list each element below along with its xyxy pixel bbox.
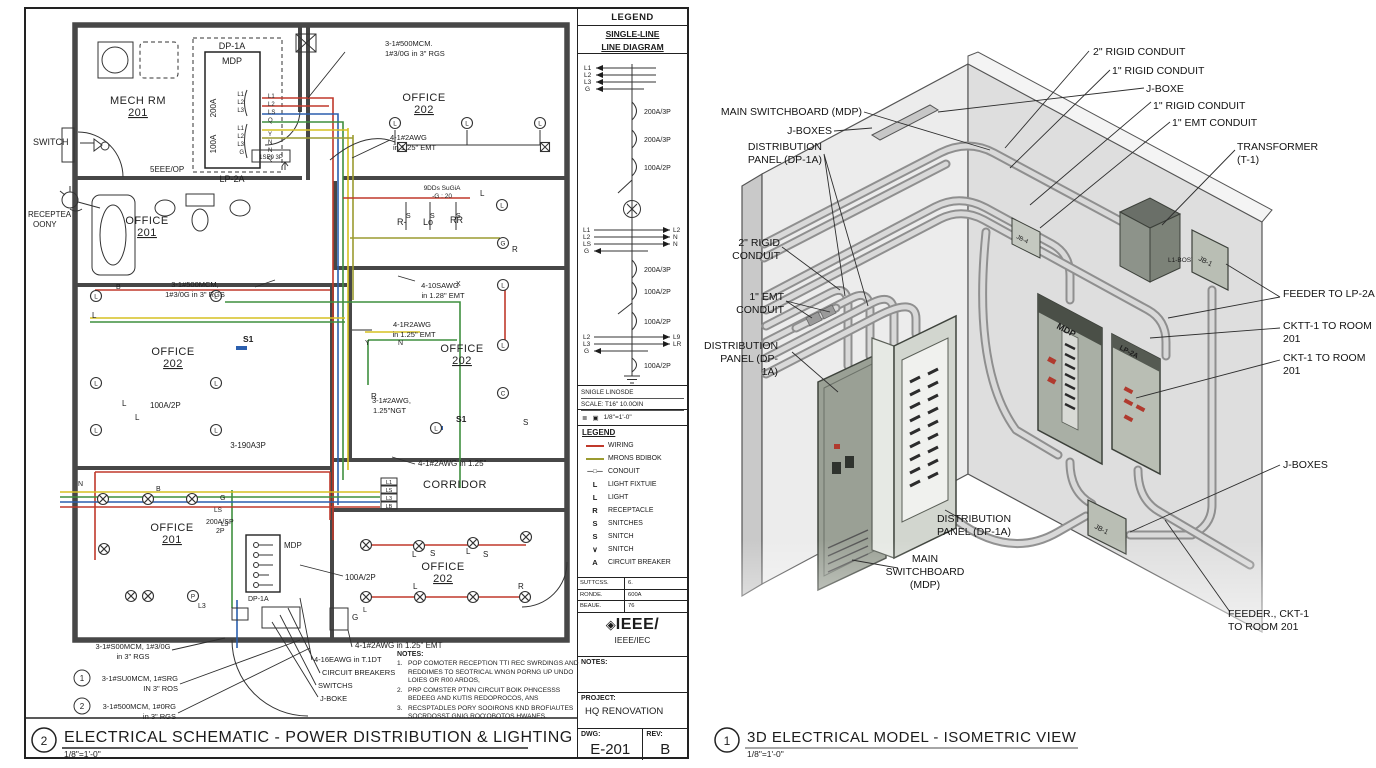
svg-text:100A/2P: 100A/2P bbox=[644, 165, 671, 172]
svg-text:2: 2 bbox=[41, 734, 48, 748]
svg-text:S1: S1 bbox=[456, 414, 467, 424]
svg-text:L1: L1 bbox=[584, 65, 592, 72]
svg-text:1#3/0G in 3" RGS: 1#3/0G in 3" RGS bbox=[385, 49, 445, 58]
svg-text:L1: L1 bbox=[583, 227, 591, 234]
svg-text:RR: RR bbox=[450, 215, 463, 225]
svg-text:J-BOKE: J-BOKE bbox=[320, 694, 347, 703]
svg-text:200A: 200A bbox=[209, 98, 218, 117]
svg-text:2P: 2P bbox=[216, 528, 225, 535]
svg-text:SWITCH: SWITCH bbox=[33, 137, 69, 147]
callout-1: 1 bbox=[80, 674, 85, 683]
single-line-footer: SNIGLE LINOSDE SCALE: T16" 10.0OIN bbox=[578, 386, 687, 410]
sheet-artwork: L1 LS L3 LB bbox=[0, 0, 1376, 768]
svg-text:202: 202 bbox=[163, 358, 183, 370]
svg-text:B: B bbox=[116, 284, 121, 291]
svg-text:G: G bbox=[585, 86, 590, 93]
callout-dist-panel-bottom: DISTRIBUTION PANEL (DP-1A) bbox=[935, 513, 1013, 539]
svg-text:100A/2P: 100A/2P bbox=[644, 289, 671, 296]
svg-text:L: L bbox=[122, 399, 127, 408]
svg-text:LS: LS bbox=[214, 507, 223, 514]
svg-text:9DDs SuGiA: 9DDs SuGiA bbox=[424, 185, 462, 192]
svg-text:L: L bbox=[501, 342, 505, 349]
svg-text:S: S bbox=[523, 418, 528, 427]
svg-text:4-10SAWG: 4-10SAWG bbox=[421, 281, 459, 290]
svg-text:200A/3P: 200A/3P bbox=[644, 137, 671, 144]
svg-text:in 1.28" EMT: in 1.28" EMT bbox=[421, 291, 465, 300]
svg-text:201: 201 bbox=[137, 227, 157, 239]
svg-text:L3: L3 bbox=[237, 142, 244, 148]
svg-text:C: C bbox=[501, 390, 506, 397]
svg-text:L2: L2 bbox=[584, 72, 592, 79]
single-line-header: SINGLE-LINE LINE DIAGRAM bbox=[578, 26, 687, 54]
svg-text:L1: L1 bbox=[386, 480, 392, 486]
svg-text:OFFICE: OFFICE bbox=[125, 215, 168, 227]
svg-text:L: L bbox=[135, 413, 140, 422]
legend-item: SSNITCHES bbox=[582, 517, 683, 530]
callout-feeder-lp2a: FEEDER TO LP-2A bbox=[1283, 288, 1375, 301]
svg-text:R: R bbox=[518, 582, 524, 591]
svg-text:L2: L2 bbox=[268, 102, 275, 108]
svg-text:L2: L2 bbox=[673, 227, 681, 234]
svg-text:LS: LS bbox=[583, 241, 592, 248]
svg-text:in 3" RGS: in 3" RGS bbox=[143, 712, 176, 721]
tbost-label: L1-BOST bbox=[1168, 257, 1195, 264]
svg-text:P: P bbox=[191, 593, 195, 600]
callout-jboxes-right: J-BOXES bbox=[1283, 459, 1373, 472]
legend-item: WIRING bbox=[582, 439, 683, 452]
svg-text:L: L bbox=[413, 582, 418, 591]
callout-1in-rigid-top2: 1" RIGID CONDUIT bbox=[1153, 100, 1245, 113]
svg-text:L: L bbox=[94, 380, 98, 387]
svg-text:Y: Y bbox=[268, 132, 272, 138]
svg-text:L9: L9 bbox=[673, 334, 681, 341]
svg-text:OFFICE: OFFICE bbox=[421, 561, 464, 573]
svg-text:CORRIDOR: CORRIDOR bbox=[423, 479, 487, 491]
info-table: SUTTCSS.6. RONDE.600A BEAUE.76 bbox=[578, 578, 687, 613]
svg-text:in 3" RGS: in 3" RGS bbox=[116, 652, 149, 661]
svg-text:202: 202 bbox=[452, 355, 472, 367]
svg-text:3-1#500MCM.: 3-1#500MCM. bbox=[385, 39, 433, 48]
svg-text:L: L bbox=[214, 427, 218, 434]
svg-text:S: S bbox=[483, 550, 488, 559]
svg-text:-G : 20: -G : 20 bbox=[432, 193, 452, 200]
callout-jboxes-left: J-BOXES bbox=[742, 125, 832, 138]
svg-text:G: G bbox=[584, 248, 589, 255]
svg-text:OFFICE: OFFICE bbox=[440, 343, 483, 355]
svg-text:R: R bbox=[512, 245, 518, 254]
titleblock-notes: NOTES: bbox=[578, 657, 687, 693]
legend-item: RRECEPTACLE bbox=[582, 504, 683, 517]
svg-text:in 1.25" EMT: in 1.25" EMT bbox=[392, 330, 436, 339]
svg-text:L1: L1 bbox=[268, 94, 275, 100]
svg-text:L: L bbox=[393, 120, 397, 127]
svg-text:L2: L2 bbox=[237, 100, 244, 106]
svg-text:ELECTRICAL SCHEMATIC - POWER D: ELECTRICAL SCHEMATIC - POWER DISTRIBUTIO… bbox=[64, 729, 573, 746]
svg-text:MECH RM: MECH RM bbox=[110, 95, 166, 107]
svg-text:1#3/0G in 3" RGS: 1#3/0G in 3" RGS bbox=[165, 290, 225, 299]
svg-text:OFFICE: OFFICE bbox=[151, 346, 194, 358]
svg-text:L3: L3 bbox=[583, 341, 591, 348]
svg-text:L3: L3 bbox=[584, 79, 592, 86]
svg-text:L3: L3 bbox=[386, 496, 392, 502]
callout-main-switchboard-bottom: MAIN SWITCHBOARD (MDP) bbox=[875, 553, 975, 591]
svg-text:G: G bbox=[220, 495, 225, 502]
svg-text:201: 201 bbox=[128, 107, 148, 119]
svg-text:3-1#2AWG,: 3-1#2AWG, bbox=[372, 396, 411, 405]
svg-text:DP-1A: DP-1A bbox=[248, 596, 269, 603]
svg-text:DP-1A: DP-1A bbox=[219, 41, 246, 51]
svg-text:LR: LR bbox=[673, 341, 682, 348]
svg-text:1.25"NGT: 1.25"NGT bbox=[373, 406, 407, 415]
svg-text:L2: L2 bbox=[583, 334, 591, 341]
svg-text:L: L bbox=[214, 380, 218, 387]
svg-text:3-1#SU0MCM, 1#SRG: 3-1#SU0MCM, 1#SRG bbox=[102, 674, 178, 683]
dwg-field: DWG: E-201 bbox=[578, 729, 643, 760]
svg-text:Y: Y bbox=[365, 340, 370, 347]
corridor-wire-tags: L1 LS L3 LB bbox=[381, 478, 397, 510]
callout-1in-emt-top: 1" EMT CONDUIT bbox=[1172, 117, 1257, 130]
svg-text:200A/SP: 200A/SP bbox=[206, 519, 234, 526]
dwg-rev-fields: DWG: E-201 REV: B bbox=[578, 729, 687, 760]
svg-text:100A: 100A bbox=[209, 134, 218, 153]
svg-text:N: N bbox=[398, 340, 403, 347]
project-field: PROJECT: HQ RENOVATION bbox=[578, 693, 687, 729]
legend-item: LLIGHT bbox=[582, 491, 683, 504]
svg-text:L: L bbox=[500, 202, 504, 209]
svg-text:S1: S1 bbox=[243, 334, 254, 344]
svg-text:L2: L2 bbox=[237, 134, 244, 140]
svg-text:L: L bbox=[92, 311, 97, 320]
svg-text:OFFICE: OFFICE bbox=[150, 522, 193, 534]
svg-text:200A/3P: 200A/3P bbox=[644, 109, 671, 116]
right-view-title: 1 3D ELECTRICAL MODEL - ISOMETRIC VIEW 1… bbox=[715, 728, 1078, 759]
svg-text:L: L bbox=[94, 293, 98, 300]
svg-text:G: G bbox=[584, 348, 589, 355]
svg-text:1SE0 3P: 1SE0 3P bbox=[259, 155, 283, 161]
ieee-logo: ◈IEEE/ IEEE/IEC bbox=[578, 613, 687, 657]
svg-text:L1: L1 bbox=[237, 92, 244, 98]
callout-dist-panel-left: DISTRIBUTION PANEL (DP-1A) bbox=[712, 141, 822, 167]
svg-text:1: 1 bbox=[724, 734, 731, 748]
svg-text:3-1#S00MCM, 1#3/0G: 3-1#S00MCM, 1#3/0G bbox=[95, 642, 170, 651]
svg-text:L2: L2 bbox=[583, 234, 591, 241]
legend-item: LLIGHT FIXTUIE bbox=[582, 478, 683, 491]
left-view-title: 2 ELECTRICAL SCHEMATIC - POWER DISTRIBUT… bbox=[32, 728, 573, 759]
legend-item: MRONS BDIBOK bbox=[582, 452, 683, 465]
legend-item: —□—CONOUIT bbox=[582, 465, 683, 478]
plan-notes: NOTES: 1.POP COMOTER RECEPTION TTI REC S… bbox=[397, 650, 583, 723]
svg-text:B: B bbox=[156, 486, 161, 493]
legend-item: SSNITCH bbox=[582, 530, 683, 543]
svg-text:Q: Q bbox=[268, 118, 273, 124]
single-line-diagram: L1L2 L3G 200A/3P 200A/3P 100A/2P L1L2 LS… bbox=[578, 54, 687, 386]
svg-text:202: 202 bbox=[414, 104, 434, 116]
svg-text:LS: LS bbox=[386, 488, 393, 494]
ieee-diamond-icon: ◈ bbox=[606, 617, 616, 632]
title-block-column: LEGEND SINGLE-LINE LINE DIAGRAM bbox=[577, 8, 688, 758]
svg-text:G: G bbox=[239, 150, 244, 156]
svg-text:100A/2P: 100A/2P bbox=[150, 401, 181, 410]
svg-text:4-1#2AWG in 1.25" EMT: 4-1#2AWG in 1.25" EMT bbox=[355, 641, 443, 650]
svg-text:4-16EAWG in T.1DT: 4-16EAWG in T.1DT bbox=[314, 655, 382, 664]
svg-text:N: N bbox=[673, 241, 678, 248]
svg-text:N: N bbox=[78, 481, 83, 488]
svg-text:L: L bbox=[363, 607, 367, 614]
svg-text:3-190A3P: 3-190A3P bbox=[230, 441, 266, 450]
svg-text:IN 3" ROS: IN 3" ROS bbox=[143, 684, 178, 693]
legend-item: ACIRCUIT BREAKER bbox=[582, 556, 683, 569]
svg-text:4-1R2AWG: 4-1R2AWG bbox=[393, 320, 431, 329]
legend-item: ∨SNITCH bbox=[582, 543, 683, 556]
svg-text:4-1#2AWG: 4-1#2AWG bbox=[390, 133, 427, 142]
svg-text:G: G bbox=[352, 613, 358, 622]
callout-2in-rigid-top: 2" RIGID CONDUIT bbox=[1093, 46, 1185, 59]
callout-feeder-ckt1: FEEDER., CKT-1 TO ROOM 201 bbox=[1228, 608, 1324, 634]
svg-text:S: S bbox=[430, 549, 435, 558]
svg-text:SWITCHS: SWITCHS bbox=[318, 681, 353, 690]
svg-text:in 1.25" EMT: in 1.25" EMT bbox=[393, 143, 437, 152]
callout-1in-emt-left: 1" EMT CONDUIT bbox=[706, 291, 784, 317]
svg-text:3D ELECTRICAL MODEL - ISOMETRI: 3D ELECTRICAL MODEL - ISOMETRIC VIEW bbox=[747, 729, 1077, 746]
svg-text:100A/2P: 100A/2P bbox=[644, 319, 671, 326]
floor-plan: L1 LS L3 LB bbox=[28, 25, 567, 721]
svg-text:5EEE/OP: 5EEE/OP bbox=[150, 165, 184, 174]
scale-row: ≣ ▣ 1/8"=1'-0" bbox=[578, 410, 687, 426]
svg-text:MDP: MDP bbox=[284, 541, 302, 550]
svg-text:201: 201 bbox=[162, 534, 182, 546]
callout-2in-rigid-left: 2" RIGID CONDUIT bbox=[702, 237, 780, 263]
lp2a-panel: LP-2A bbox=[1112, 334, 1160, 474]
svg-text:OFFICE: OFFICE bbox=[402, 92, 445, 104]
ground-symbol-icon: ≣ bbox=[582, 414, 587, 422]
svg-text:L: L bbox=[480, 189, 485, 198]
svg-text:L1: L1 bbox=[237, 126, 244, 132]
callout-transformer: TRANSFORMER (T-1) bbox=[1237, 141, 1313, 167]
callout-jboxe-top: J-BOXE bbox=[1146, 83, 1184, 96]
svg-text:100A/2P: 100A/2P bbox=[644, 363, 671, 370]
svg-text:CIRCUIT BREAKERS: CIRCUIT BREAKERS bbox=[322, 668, 395, 677]
transformer-box bbox=[1120, 198, 1180, 282]
svg-text:L3: L3 bbox=[198, 603, 206, 610]
svg-text:L: L bbox=[538, 120, 542, 127]
svg-text:L: L bbox=[94, 427, 98, 434]
svg-text:MDP: MDP bbox=[222, 56, 242, 66]
svg-text:OONY: OONY bbox=[33, 220, 57, 229]
svg-text:200A/3P: 200A/3P bbox=[644, 267, 671, 274]
svg-text:LP-2A: LP-2A bbox=[219, 174, 244, 184]
callout-ckt1-room201-a: CKTT-1 TO ROOM 201 bbox=[1283, 320, 1376, 346]
svg-text:100A/2P: 100A/2P bbox=[345, 573, 376, 582]
svg-text:N: N bbox=[268, 148, 272, 154]
callout-ckt1-room201-b: CKT-1 TO ROOM 201 bbox=[1283, 352, 1376, 378]
callout-2: 2 bbox=[80, 702, 85, 711]
svg-text:4-1#2AWG in 1.25": 4-1#2AWG in 1.25" bbox=[418, 459, 487, 468]
svg-text:202: 202 bbox=[433, 573, 453, 585]
svg-text:L: L bbox=[465, 120, 469, 127]
svg-text:LS: LS bbox=[268, 110, 275, 116]
svg-text:L: L bbox=[434, 425, 438, 432]
callout-main-switchboard-left: MAIN SWITCHBOARD (MDP) bbox=[702, 106, 862, 119]
legend-header: LEGEND bbox=[578, 9, 687, 26]
callout-dist-panel-left2: DISTRIBUTION PANEL (DP-1A) bbox=[704, 340, 778, 378]
svg-text:Lo: Lo bbox=[423, 217, 433, 227]
callout-1in-rigid-top: 1" RIGID CONDUIT bbox=[1112, 65, 1204, 78]
svg-text:L3: L3 bbox=[237, 108, 244, 114]
svg-text:3-1#500MCM,: 3-1#500MCM, bbox=[171, 280, 219, 289]
svg-text:L: L bbox=[501, 282, 505, 289]
svg-text:G: G bbox=[501, 240, 506, 247]
symbol-legend: LEGEND WIRING MRONS BDIBOK —□—CONOUIT LL… bbox=[578, 426, 687, 578]
svg-text:N: N bbox=[268, 140, 272, 146]
svg-text:3-1#500MCM, 1#0RG: 3-1#500MCM, 1#0RG bbox=[103, 702, 177, 711]
svg-text:RECEPTEA: RECEPTEA bbox=[28, 210, 72, 219]
svg-text:1/8"=1'-0": 1/8"=1'-0" bbox=[64, 749, 101, 759]
svg-text:R-: R- bbox=[397, 217, 407, 227]
rev-field: REV: B bbox=[643, 729, 687, 760]
svg-text:1/8"=1'-0": 1/8"=1'-0" bbox=[747, 749, 784, 759]
svg-text:LB: LB bbox=[386, 504, 393, 510]
svg-text:N: N bbox=[673, 234, 678, 241]
box-symbol-icon: ▣ bbox=[592, 414, 598, 422]
svg-text:S: S bbox=[406, 213, 411, 220]
